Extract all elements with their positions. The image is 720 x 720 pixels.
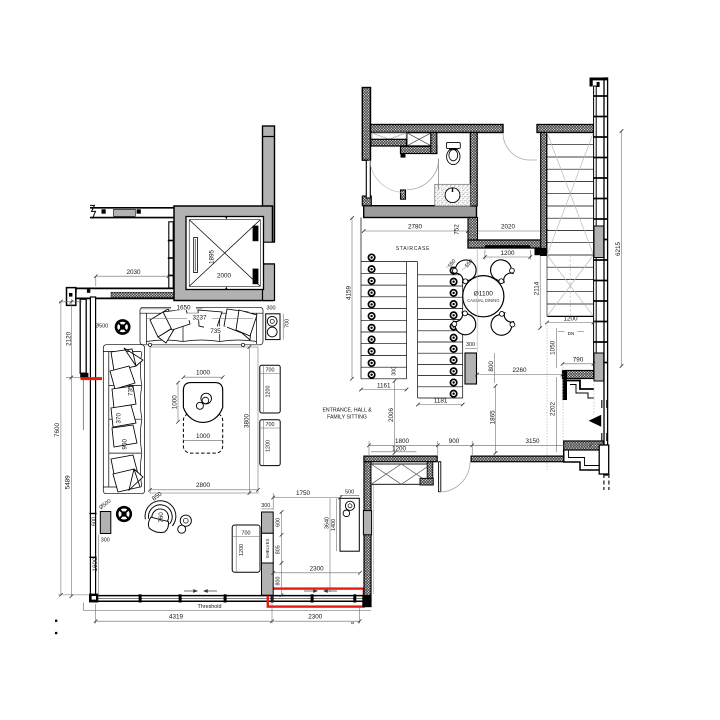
svg-text:7600: 7600 <box>54 423 61 438</box>
svg-text:CASUAL DINING: CASUAL DINING <box>467 298 499 303</box>
svg-text:Threshold: Threshold <box>198 604 222 610</box>
svg-text:4159: 4159 <box>345 286 352 301</box>
svg-text:SHELVES: SHELVES <box>265 538 270 558</box>
svg-text:4319: 4319 <box>169 614 184 621</box>
svg-text:800: 800 <box>276 577 282 586</box>
svg-text:300: 300 <box>101 537 110 543</box>
svg-text:735: 735 <box>210 328 221 335</box>
svg-text:5489: 5489 <box>64 475 71 490</box>
svg-text:FAMILY SITTING: FAMILY SITTING <box>327 415 367 421</box>
svg-text:2020: 2020 <box>501 224 516 231</box>
svg-text:800: 800 <box>488 361 495 372</box>
svg-text:600: 600 <box>91 517 97 526</box>
svg-text:735: 735 <box>127 385 134 396</box>
svg-text:760: 760 <box>158 512 165 523</box>
svg-text:1000: 1000 <box>196 433 211 440</box>
svg-text:3150: 3150 <box>525 438 540 445</box>
svg-text:2202: 2202 <box>550 402 557 417</box>
svg-text:1600: 1600 <box>92 557 99 572</box>
svg-text:1200: 1200 <box>239 544 245 556</box>
svg-text:DN: DN <box>568 331 575 336</box>
svg-text:600: 600 <box>276 518 282 527</box>
svg-text:370: 370 <box>115 413 122 424</box>
svg-text:2006: 2006 <box>388 408 395 423</box>
svg-text:6215: 6215 <box>615 242 622 257</box>
svg-text:STAIRCASE: STAIRCASE <box>396 246 430 252</box>
svg-text:1650: 1650 <box>176 304 191 311</box>
svg-text:1161: 1161 <box>377 382 391 389</box>
svg-text:1200: 1200 <box>500 250 515 257</box>
svg-text:300: 300 <box>466 342 475 348</box>
svg-text:2120: 2120 <box>65 331 72 346</box>
svg-text:2030: 2030 <box>126 269 141 276</box>
svg-text:Ø1100: Ø1100 <box>474 291 494 298</box>
svg-text:1050: 1050 <box>550 340 557 355</box>
svg-text:3640: 3640 <box>324 517 330 529</box>
svg-text:3237: 3237 <box>192 314 207 321</box>
svg-text:300: 300 <box>391 367 397 376</box>
svg-text:752: 752 <box>453 224 460 235</box>
svg-text:2780: 2780 <box>408 224 423 231</box>
svg-text:1200: 1200 <box>266 386 272 398</box>
svg-text:1800: 1800 <box>395 438 410 445</box>
svg-text:700: 700 <box>285 319 291 328</box>
svg-text:2260: 2260 <box>512 367 527 374</box>
svg-text:1200: 1200 <box>563 315 578 322</box>
svg-text:700: 700 <box>266 422 275 428</box>
svg-text:950: 950 <box>121 439 128 450</box>
svg-text:900: 900 <box>449 438 460 445</box>
svg-text:1000: 1000 <box>172 395 179 410</box>
svg-text:500: 500 <box>345 489 354 495</box>
svg-text:0: 0 <box>350 621 355 624</box>
svg-text:1750: 1750 <box>296 490 311 497</box>
svg-text:1200: 1200 <box>392 446 407 453</box>
svg-text:2800: 2800 <box>196 482 211 489</box>
svg-text:2300: 2300 <box>308 614 323 621</box>
svg-text:Ø500: Ø500 <box>95 324 108 330</box>
svg-text:700: 700 <box>266 367 275 373</box>
svg-text:2114: 2114 <box>534 281 541 295</box>
svg-text:1000: 1000 <box>196 370 211 377</box>
svg-text:1181: 1181 <box>434 397 448 404</box>
svg-text:1865: 1865 <box>489 410 496 425</box>
svg-text:1200: 1200 <box>266 440 272 452</box>
svg-text:300: 300 <box>267 305 276 311</box>
svg-text:805: 805 <box>276 545 282 554</box>
svg-text:1895: 1895 <box>209 250 216 265</box>
svg-text:1400: 1400 <box>331 519 337 531</box>
svg-text:3800: 3800 <box>243 414 250 429</box>
svg-text:2000: 2000 <box>217 273 232 280</box>
svg-text:790: 790 <box>573 356 584 363</box>
svg-text:ENTRANCE, HALL &: ENTRANCE, HALL & <box>322 408 372 414</box>
svg-text:300: 300 <box>261 503 270 509</box>
svg-text:700: 700 <box>242 530 251 536</box>
svg-text:2300: 2300 <box>310 565 325 572</box>
